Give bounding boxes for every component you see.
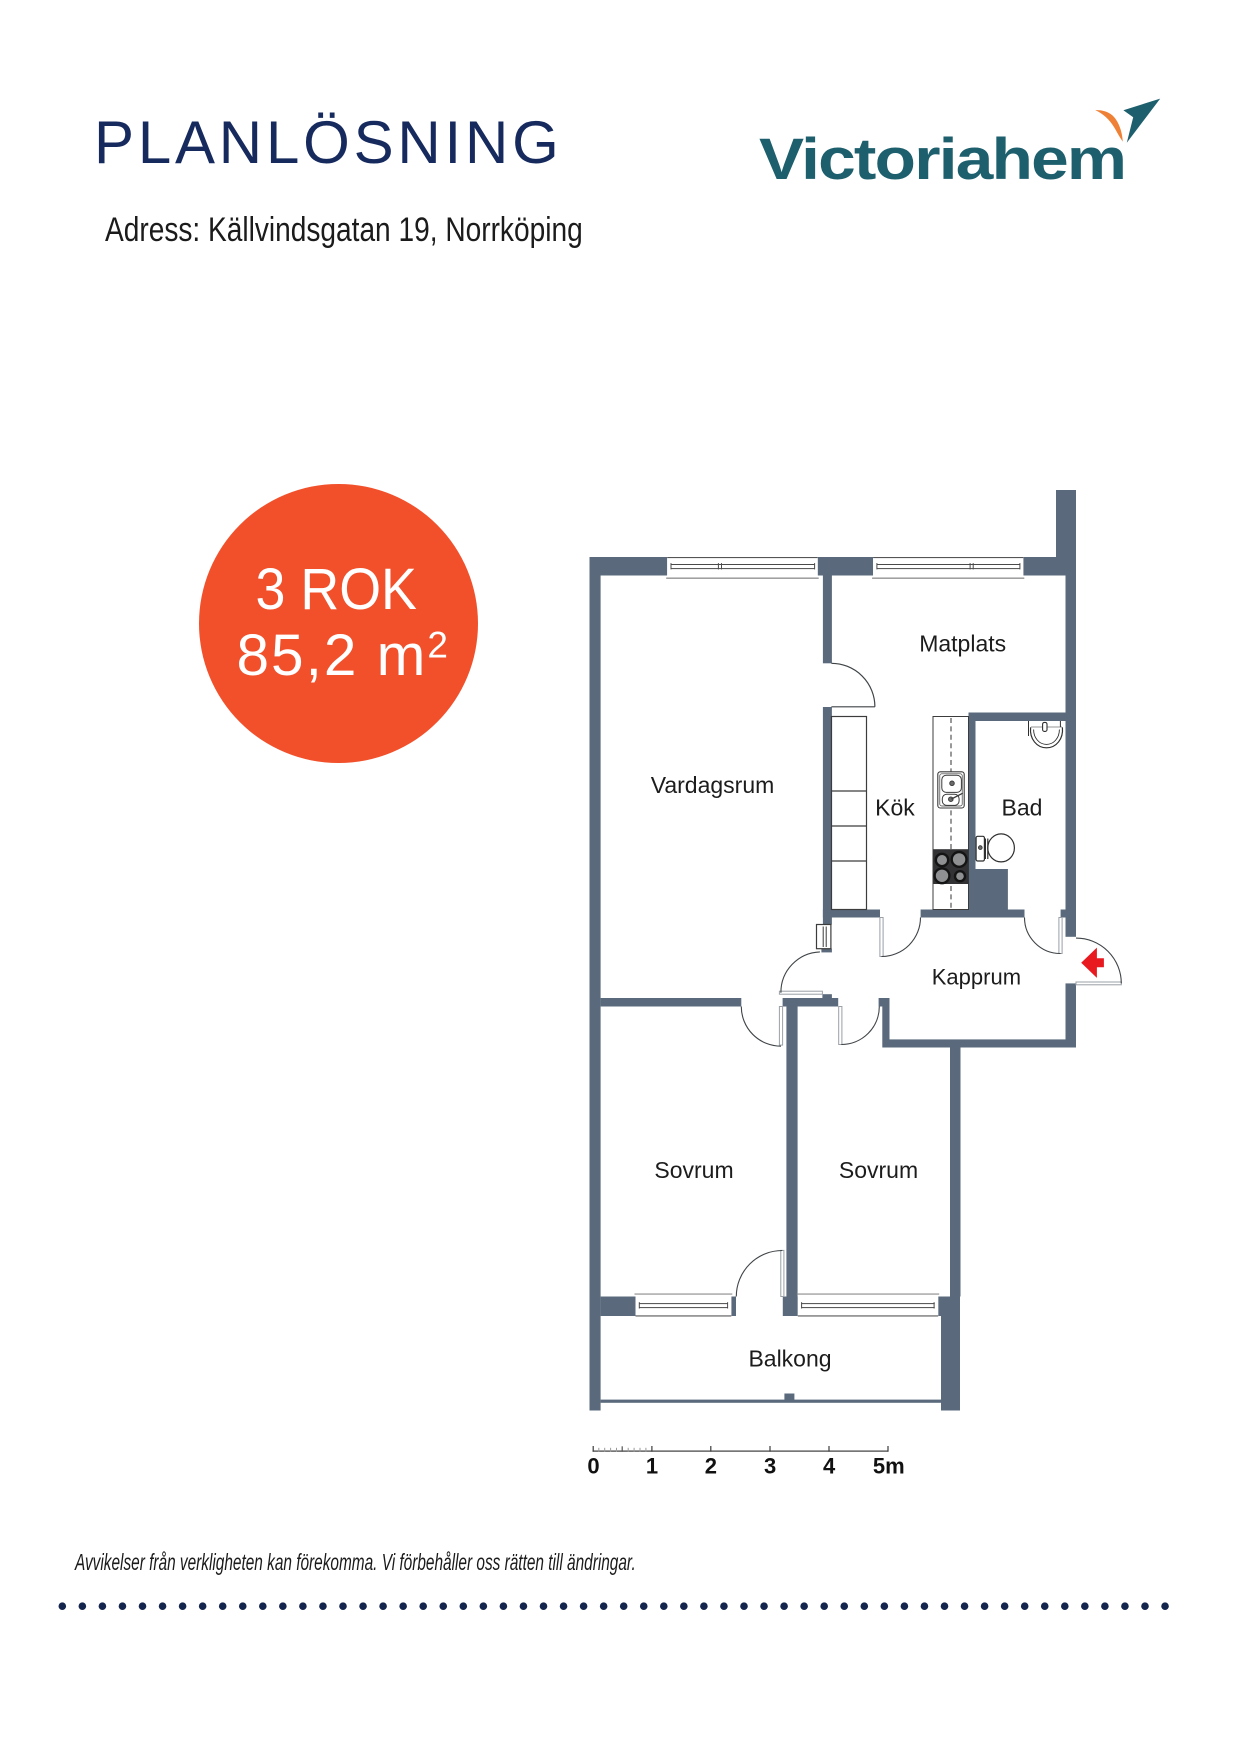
svg-text:1: 1 <box>646 1454 658 1479</box>
svg-text:4: 4 <box>823 1454 836 1479</box>
svg-text:Matplats: Matplats <box>919 631 1006 657</box>
svg-text:2: 2 <box>705 1454 717 1479</box>
svg-text:0: 0 <box>587 1454 599 1479</box>
svg-text:85,2 m2: 85,2 m2 <box>236 623 449 688</box>
svg-text:Kök: Kök <box>875 795 915 821</box>
svg-text:3: 3 <box>764 1454 776 1479</box>
svg-text:Balkong: Balkong <box>748 1346 831 1372</box>
svg-text:Sovrum: Sovrum <box>654 1157 733 1183</box>
svg-text:Kapprum: Kapprum <box>932 965 1021 990</box>
svg-text:Bad: Bad <box>1002 795 1043 821</box>
svg-text:3 ROK: 3 ROK <box>255 556 416 622</box>
svg-text:5m: 5m <box>873 1454 905 1479</box>
svg-text:Vardagsrum: Vardagsrum <box>651 772 775 798</box>
svg-text:Sovrum: Sovrum <box>839 1157 918 1183</box>
